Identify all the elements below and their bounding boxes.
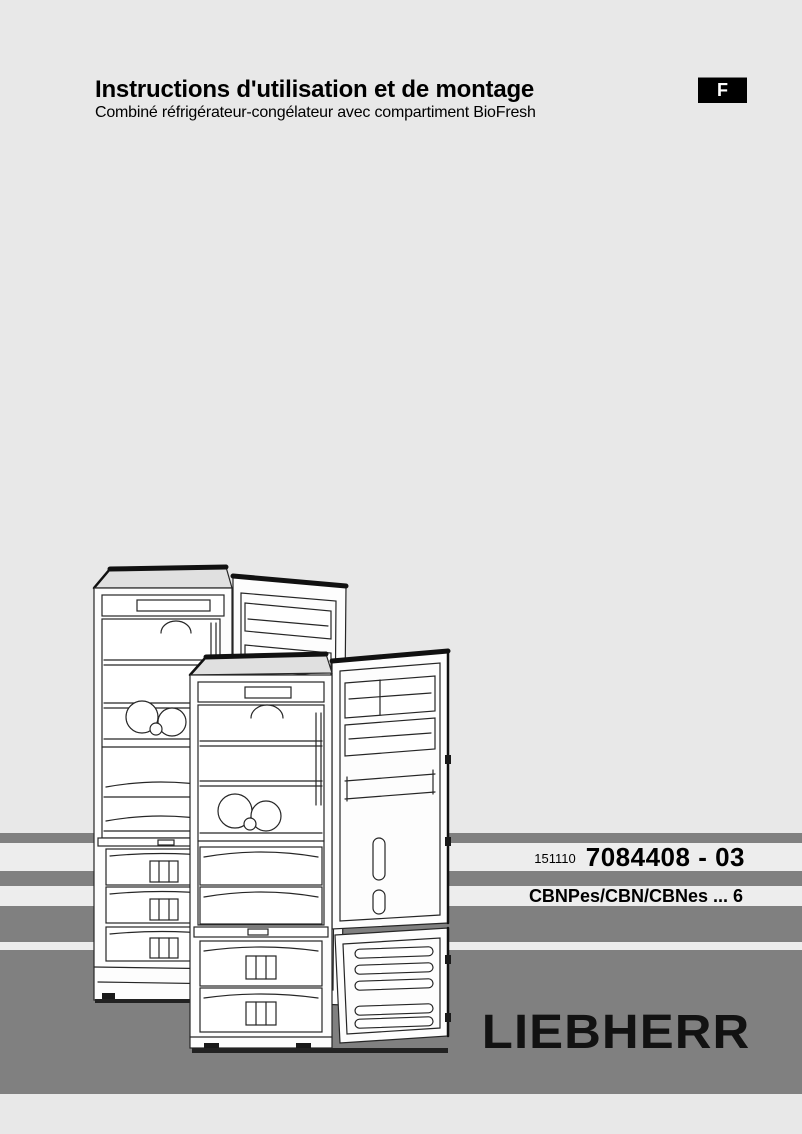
liebherr-logo: LIEBHERR [481, 1009, 750, 1057]
manual-cover-page: Instructions d'utilisation et de montage… [0, 0, 802, 1134]
page-title: Instructions d'utilisation et de montage [95, 76, 534, 104]
fridge-illustration [80, 555, 460, 1070]
date-code: 151110 [534, 851, 575, 866]
page-subtitle: Combiné réfrigérateur-congélateur avec c… [95, 104, 536, 122]
language-badge-label: F [717, 80, 728, 101]
model-range: CBNPes/CBN/CBNes ... 6 [529, 886, 743, 906]
language-badge: F [698, 77, 747, 103]
part-number: 7084408 - 03 [586, 842, 745, 873]
